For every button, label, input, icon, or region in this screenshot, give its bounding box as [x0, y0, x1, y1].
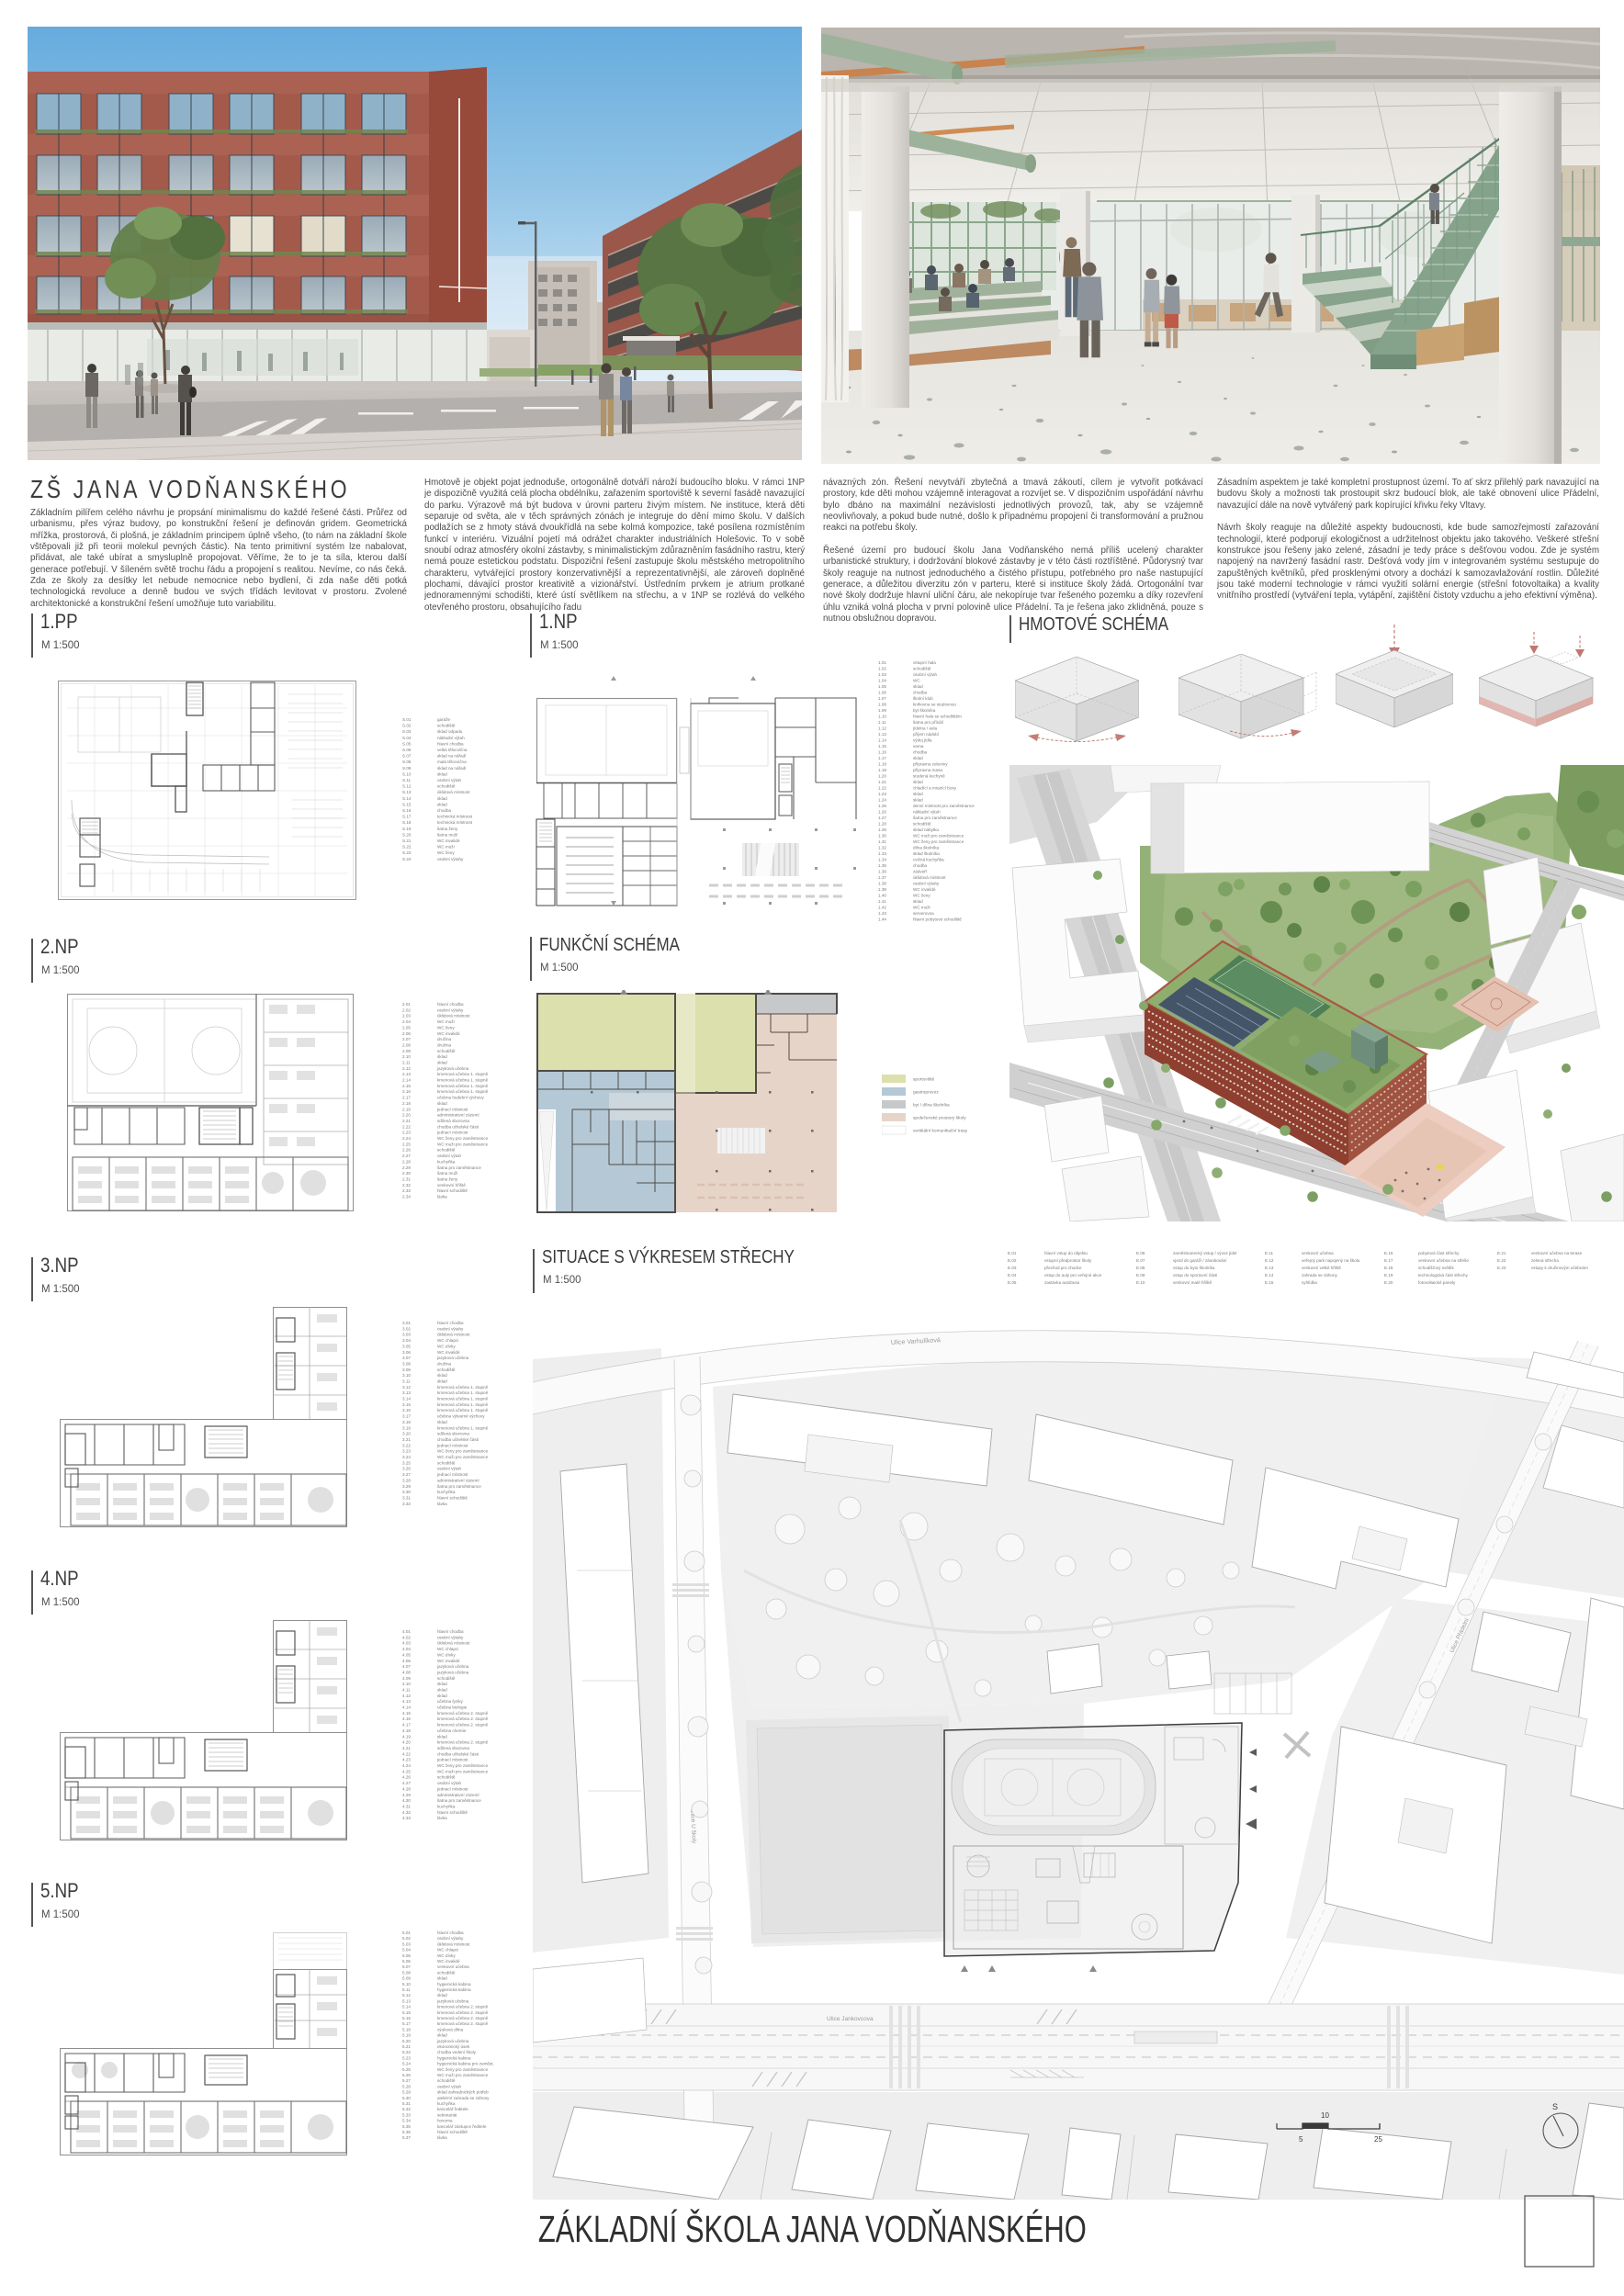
svg-text:10: 10 — [1321, 2111, 1329, 2120]
svg-text:sklad: sklad — [437, 1101, 447, 1106]
svg-text:5.13: 5.13 — [402, 1998, 411, 2003]
svg-text:5.14: 5.14 — [402, 2005, 411, 2009]
svg-text:osobní výtah: osobní výtah — [437, 1781, 461, 1785]
svg-text:denní místnost pro zaměstnance: denní místnost pro zaměstnance — [913, 804, 975, 808]
svg-text:hlavní hala se schodištěm: hlavní hala se schodištěm — [913, 715, 962, 719]
svg-text:jednací místnost: jednací místnost — [436, 1472, 468, 1477]
svg-text:kuchyňka: kuchyňka — [437, 1490, 456, 1494]
svg-text:garáže: garáže — [437, 717, 450, 722]
svg-text:jazyková učebna: jazyková učebna — [436, 1998, 469, 2003]
svg-text:venkovní velké hřiště: venkovní velké hřiště — [1302, 1266, 1341, 1270]
svg-text:kmenová učebna 1. stupně: kmenová učebna 1. stupně — [437, 1385, 489, 1390]
svg-text:WC invalidé: WC invalidé — [437, 838, 460, 843]
svg-text:kmenová učebna 2. stupně: kmenová učebna 2. stupně — [437, 1711, 489, 1716]
svg-text:hovorna: hovorna — [437, 2119, 453, 2123]
svg-text:4.11: 4.11 — [402, 1688, 411, 1693]
svg-text:4.06: 4.06 — [402, 1659, 411, 1663]
svg-text:WC ženy pro zaměstnance: WC ženy pro zaměstnance — [437, 1763, 489, 1768]
svg-text:S.14: S.14 — [402, 796, 412, 801]
svg-text:úklidová místnost: úklidová místnost — [437, 790, 470, 794]
svg-text:E.18: E.18 — [1384, 1266, 1393, 1270]
svg-text:5.22: 5.22 — [402, 2050, 411, 2054]
svg-text:3.24: 3.24 — [402, 1455, 411, 1459]
svg-text:vstupy k družinovým učebnám: vstupy k družinovým učebnám — [1531, 1266, 1588, 1270]
svg-text:5.10: 5.10 — [402, 1982, 411, 1986]
svg-text:S.01: S.01 — [402, 717, 412, 722]
svg-text:3.10: 3.10 — [402, 1373, 411, 1378]
svg-text:5.37: 5.37 — [402, 2135, 411, 2140]
svg-text:příjem nádobí: příjem nádobí — [913, 732, 940, 737]
svg-text:E.20: E.20 — [1384, 1280, 1393, 1285]
svg-text:sklad odpadu: sklad odpadu — [437, 729, 463, 734]
svg-text:5.24: 5.24 — [402, 2062, 411, 2066]
svg-text:WC ženy: WC ženy — [913, 894, 930, 898]
svg-text:5.26: 5.26 — [402, 2073, 411, 2077]
svg-text:5.07: 5.07 — [402, 1964, 411, 1969]
svg-text:schodiště: schodiště — [913, 822, 931, 827]
svg-text:sklad: sklad — [437, 1373, 447, 1378]
svg-text:1.34: 1.34 — [878, 858, 886, 862]
svg-text:sklad: sklad — [913, 756, 923, 760]
svg-text:4.16: 4.16 — [402, 1716, 411, 1721]
svg-text:chodba vedení školy: chodba vedení školy — [437, 2050, 477, 2054]
svg-text:hlavní chodba: hlavní chodba — [437, 741, 464, 746]
svg-text:chodba: chodba — [913, 863, 928, 868]
svg-text:lávka: lávka — [437, 1195, 447, 1199]
svg-text:1.25: 1.25 — [878, 804, 886, 808]
svg-text:E.02: E.02 — [1008, 1258, 1017, 1263]
svg-text:5.33: 5.33 — [402, 2112, 411, 2117]
svg-text:E.21: E.21 — [1497, 1251, 1506, 1255]
svg-text:1.31: 1.31 — [878, 839, 886, 844]
svg-text:2.34: 2.34 — [402, 1195, 411, 1199]
svg-text:WC ženy: WC ženy — [437, 850, 455, 855]
svg-text:schodišťový světlík: schodišťový světlík — [1418, 1266, 1454, 1270]
svg-text:chodba: chodba — [913, 750, 928, 755]
svg-text:sklad: sklad — [437, 1379, 447, 1384]
svg-text:E.17: E.17 — [1384, 1258, 1393, 1263]
svg-text:1.04: 1.04 — [878, 679, 886, 683]
svg-text:S.05: S.05 — [402, 741, 412, 746]
svg-text:4.29: 4.29 — [402, 1793, 411, 1797]
svg-text:4.20: 4.20 — [402, 1740, 411, 1745]
svg-text:osobní výtahy: osobní výtahy — [437, 1326, 464, 1331]
svg-text:3.25: 3.25 — [402, 1460, 411, 1465]
svg-text:4.13: 4.13 — [402, 1699, 411, 1704]
svg-text:jídelna / aula: jídelna / aula — [912, 726, 937, 731]
svg-text:5.03: 5.03 — [402, 1941, 411, 1946]
svg-text:4.31: 4.31 — [402, 1805, 411, 1809]
svg-text:5.18: 5.18 — [402, 2027, 411, 2032]
svg-text:hlavní vstup do objektu: hlavní vstup do objektu — [1044, 1251, 1088, 1255]
svg-text:3.28: 3.28 — [402, 1478, 411, 1482]
svg-text:kmenová učebna 2. stupně: kmenová učebna 2. stupně — [437, 2010, 489, 2015]
svg-text:osobní výtahy: osobní výtahy — [437, 1936, 464, 1941]
svg-text:5.02: 5.02 — [402, 1936, 411, 1941]
svg-text:2.25: 2.25 — [402, 1142, 411, 1146]
svg-text:1.13: 1.13 — [878, 732, 886, 737]
svg-text:vyhlídka: vyhlídka — [1302, 1280, 1317, 1285]
svg-text:kuchyňka: kuchyňka — [437, 1805, 456, 1809]
svg-text:S.04: S.04 — [402, 736, 412, 740]
svg-text:družina: družina — [437, 1043, 452, 1048]
svg-text:S.07: S.07 — [402, 754, 412, 759]
svg-text:hygienická kabina: hygienická kabina — [437, 2055, 471, 2060]
svg-text:fotovoltaické panely: fotovoltaické panely — [1418, 1280, 1456, 1285]
svg-text:sdílená sborovna: sdílená sborovna — [437, 1432, 469, 1436]
svg-text:4.12: 4.12 — [402, 1694, 411, 1698]
svg-text:šatna pro zaměstnance: šatna pro zaměstnance — [437, 1484, 481, 1489]
svg-text:1.05: 1.05 — [878, 684, 886, 689]
svg-text:venkovní učebna na terase: venkovní učebna na terase — [1531, 1251, 1583, 1255]
svg-text:S.16: S.16 — [402, 808, 412, 813]
svg-text:hlavní chodba: hlavní chodba — [437, 1321, 464, 1325]
svg-text:schodiště: schodiště — [437, 784, 456, 789]
svg-text:5: 5 — [1299, 2135, 1303, 2144]
svg-text:3.05: 3.05 — [402, 1344, 411, 1348]
svg-text:E.06: E.06 — [1136, 1251, 1145, 1255]
svg-text:2.21: 2.21 — [402, 1119, 411, 1123]
svg-text:sklad: sklad — [437, 1054, 447, 1059]
svg-text:5.21: 5.21 — [402, 2044, 411, 2049]
svg-text:vertikální komunikační trasy: vertikální komunikační trasy — [913, 1129, 968, 1134]
svg-text:schodiště: schodiště — [437, 1049, 456, 1053]
svg-text:1.17: 1.17 — [878, 756, 886, 760]
svg-text:výuková dílna: výuková dílna — [437, 2027, 464, 2032]
svg-text:technologická část střechy: technologická část střechy — [1418, 1273, 1469, 1277]
svg-text:kmenová učebna 1. stupně: kmenová učebna 1. stupně — [437, 1089, 489, 1094]
svg-text:kmenová učebna 1. stupně: kmenová učebna 1. stupně — [437, 1397, 489, 1401]
svg-text:4.04: 4.04 — [402, 1647, 411, 1651]
svg-text:4.27: 4.27 — [402, 1781, 411, 1785]
svg-text:venkovní malé hřiště: venkovní malé hřiště — [1173, 1280, 1212, 1285]
svg-text:WC dívky: WC dívky — [437, 1652, 456, 1657]
svg-text:kmenová učebna 2. stupně: kmenová učebna 2. stupně — [437, 2021, 489, 2026]
svg-text:WC muži pro zaměstnance: WC muži pro zaměstnance — [437, 2073, 489, 2077]
svg-text:4.09: 4.09 — [402, 1676, 411, 1681]
svg-text:pobytová část střechy: pobytová část střechy — [1418, 1251, 1460, 1255]
svg-text:sklad: sklad — [437, 771, 447, 776]
svg-text:šatna ženy: šatna ženy — [437, 1177, 458, 1182]
svg-text:kancelář zástupce ředitele: kancelář zástupce ředitele — [437, 2124, 487, 2129]
svg-text:3.17: 3.17 — [402, 1414, 411, 1419]
svg-text:1.22: 1.22 — [878, 786, 886, 791]
svg-text:chodba učitelské části: chodba učitelské části — [437, 1437, 479, 1442]
svg-text:technická místnost: technická místnost — [437, 815, 473, 819]
svg-text:S.22: S.22 — [402, 845, 412, 850]
svg-text:kmenová učebna 1. stupně: kmenová učebna 1. stupně — [437, 1078, 489, 1083]
svg-text:3.07: 3.07 — [402, 1356, 411, 1360]
svg-text:sklad: sklad — [913, 798, 923, 803]
svg-text:šatna pro zaměstnance: šatna pro zaměstnance — [437, 1165, 481, 1170]
svg-text:3.26: 3.26 — [402, 1467, 411, 1471]
svg-text:přechod pro chodce: přechod pro chodce — [1044, 1266, 1082, 1270]
svg-text:osobní výtahy: osobní výtahy — [437, 1635, 464, 1639]
svg-text:WC ženy pro zaměstnance: WC ženy pro zaměstnance — [437, 2067, 489, 2072]
svg-text:3.20: 3.20 — [402, 1432, 411, 1436]
svg-text:2.29: 2.29 — [402, 1165, 411, 1170]
svg-text:vstupní předprostor školy: vstupní předprostor školy — [1044, 1258, 1092, 1263]
svg-text:učebna výtvarné výchovy: učebna výtvarné výchovy — [437, 1414, 485, 1419]
svg-text:schodiště: schodiště — [437, 1367, 456, 1372]
svg-text:venkovní hřiště: venkovní hřiště — [437, 1183, 466, 1187]
svg-text:1.12: 1.12 — [878, 726, 886, 731]
svg-text:ateliérní zahrada se záhony: ateliérní zahrada se záhony — [437, 2096, 490, 2100]
svg-text:hygienická kabina: hygienická kabina — [437, 1987, 471, 1992]
svg-text:3.02: 3.02 — [402, 1326, 411, 1331]
svg-text:S.10: S.10 — [402, 771, 412, 776]
svg-text:kmenová učebna 1. stupně: kmenová učebna 1. stupně — [437, 1425, 489, 1430]
svg-text:4.18: 4.18 — [402, 1728, 411, 1733]
svg-text:úklidová místnost: úklidová místnost — [437, 1333, 470, 1337]
svg-text:2.27: 2.27 — [402, 1154, 411, 1158]
svg-text:výdej jídla: výdej jídla — [913, 738, 932, 743]
svg-text:1.39: 1.39 — [878, 887, 886, 892]
svg-text:1.37: 1.37 — [878, 875, 886, 880]
svg-text:WC invalidé: WC invalidé — [437, 1350, 460, 1355]
svg-text:malá tělocvična: malá tělocvična — [437, 760, 467, 764]
svg-text:5.31: 5.31 — [402, 2101, 411, 2106]
svg-text:hlavní schodiště: hlavní schodiště — [437, 1188, 468, 1193]
svg-text:4.22: 4.22 — [402, 1751, 411, 1756]
svg-text:1.01: 1.01 — [878, 660, 886, 665]
svg-text:šatna pro zaměstnance: šatna pro zaměstnance — [437, 1798, 481, 1803]
svg-text:vstup do auly pro veřejné akce: vstup do auly pro veřejné akce — [1044, 1273, 1102, 1277]
svg-text:5.16: 5.16 — [402, 2016, 411, 2020]
svg-text:WC invalidé: WC invalidé — [913, 887, 936, 892]
svg-text:WC muži pro zaměstnance: WC muži pro zaměstnance — [437, 1142, 489, 1146]
svg-text:1.07: 1.07 — [878, 696, 886, 701]
svg-text:2.15: 2.15 — [402, 1084, 411, 1088]
svg-text:nákladní výtah: nákladní výtah — [913, 810, 941, 815]
svg-text:sklad: sklad — [437, 1688, 447, 1693]
svg-text:4.17: 4.17 — [402, 1723, 411, 1728]
svg-text:3.12: 3.12 — [402, 1385, 411, 1390]
svg-text:sklad školníka: sklad školníka — [913, 851, 940, 856]
svg-text:osobní výtahy: osobní výtahy — [437, 1007, 464, 1012]
svg-text:WC muži: WC muži — [913, 906, 930, 910]
svg-text:1.33: 1.33 — [878, 851, 886, 856]
svg-text:WC invalidé: WC invalidé — [437, 1959, 460, 1964]
svg-text:vstupní hala: vstupní hala — [913, 660, 936, 665]
svg-text:1.36: 1.36 — [878, 870, 886, 874]
svg-text:1.19: 1.19 — [878, 768, 886, 772]
svg-text:zádveří: zádveří — [913, 870, 928, 874]
svg-text:E.08: E.08 — [1136, 1266, 1145, 1270]
svg-text:1.09: 1.09 — [878, 708, 886, 713]
svg-text:učebna chemie: učebna chemie — [437, 1728, 467, 1733]
svg-text:sklad: sklad — [437, 1976, 447, 1981]
svg-text:3.06: 3.06 — [402, 1350, 411, 1355]
svg-text:S.17: S.17 — [402, 815, 412, 819]
svg-text:S.09: S.09 — [402, 766, 412, 771]
svg-text:5.09: 5.09 — [402, 1976, 411, 1981]
svg-text:vjezd do garáží / zásobování: vjezd do garáží / zásobování — [1173, 1258, 1227, 1263]
svg-text:WC invalidé: WC invalidé — [437, 1659, 460, 1663]
svg-text:venkovní učebna: venkovní učebna — [437, 1964, 469, 1969]
svg-text:4.01: 4.01 — [402, 1629, 411, 1634]
svg-text:E.15: E.15 — [1265, 1280, 1274, 1285]
svg-text:jazyková učebna: jazyková učebna — [436, 2039, 469, 2043]
svg-text:5.28: 5.28 — [402, 2084, 411, 2088]
svg-text:4.08: 4.08 — [402, 1671, 411, 1675]
svg-text:WC ženy pro zaměstnance: WC ženy pro zaměstnance — [437, 1449, 489, 1454]
svg-text:osobní výtah: osobní výtah — [437, 778, 461, 782]
svg-text:4.24: 4.24 — [402, 1763, 411, 1768]
svg-text:2.02: 2.02 — [402, 1007, 411, 1012]
svg-text:2.33: 2.33 — [402, 1188, 411, 1193]
svg-text:WC: WC — [913, 679, 920, 683]
svg-text:družina: družina — [437, 1037, 452, 1041]
svg-text:sklad: sklad — [437, 1420, 447, 1424]
svg-text:2.11: 2.11 — [402, 1061, 411, 1065]
svg-text:2.06: 2.06 — [402, 1031, 411, 1036]
svg-text:1.43: 1.43 — [878, 911, 886, 916]
svg-text:1.18: 1.18 — [878, 762, 886, 767]
svg-text:5.30: 5.30 — [402, 2096, 411, 2100]
svg-text:kmenová učebna 1. stupně: kmenová učebna 1. stupně — [437, 1084, 489, 1088]
svg-text:2.13: 2.13 — [402, 1072, 411, 1076]
svg-text:jednací místnost: jednací místnost — [436, 1443, 468, 1447]
svg-text:vstup do sportovní části: vstup do sportovní části — [1173, 1273, 1217, 1277]
svg-text:sklad: sklad — [437, 1694, 447, 1698]
svg-text:1.42: 1.42 — [878, 906, 886, 910]
svg-text:zelená střecha: zelená střecha — [1531, 1258, 1559, 1263]
svg-text:jazyková učebna: jazyková učebna — [436, 1356, 469, 1360]
svg-text:sklad: sklad — [437, 1682, 447, 1686]
svg-text:družina: družina — [437, 1362, 452, 1367]
svg-text:1.26: 1.26 — [878, 810, 886, 815]
svg-text:2.26: 2.26 — [402, 1148, 411, 1153]
svg-text:1.32: 1.32 — [878, 846, 886, 850]
svg-text:WC muži pro zaměstnance: WC muži pro zaměstnance — [437, 1455, 489, 1459]
svg-text:2.19: 2.19 — [402, 1107, 411, 1111]
svg-text:1.10: 1.10 — [878, 715, 886, 719]
svg-text:E.09: E.09 — [1136, 1273, 1145, 1277]
svg-text:chladící a mrazící boxy: chladící a mrazící boxy — [913, 786, 957, 791]
svg-text:4.10: 4.10 — [402, 1682, 411, 1686]
svg-text:5.19: 5.19 — [402, 2033, 411, 2038]
svg-text:4.23: 4.23 — [402, 1758, 411, 1762]
svg-text:osobní výtah: osobní výtah — [437, 1154, 461, 1158]
svg-text:5.29: 5.29 — [402, 2090, 411, 2095]
svg-text:3.11: 3.11 — [402, 1379, 411, 1384]
svg-text:3.09: 3.09 — [402, 1367, 411, 1372]
svg-text:3.01: 3.01 — [402, 1321, 411, 1325]
svg-text:učebna fyziky: učebna fyziky — [437, 1699, 464, 1704]
svg-text:osobní výtahy: osobní výtahy — [437, 857, 464, 861]
svg-text:lávka: lávka — [437, 1816, 447, 1820]
svg-text:3.15: 3.15 — [402, 1402, 411, 1407]
svg-text:sklad: sklad — [437, 802, 447, 806]
svg-text:1.16: 1.16 — [878, 750, 886, 755]
svg-text:1.29: 1.29 — [878, 827, 886, 832]
svg-text:zastávka autobusu: zastávka autobusu — [1044, 1280, 1080, 1285]
svg-text:sklad: sklad — [913, 899, 923, 904]
svg-text:sklad: sklad — [437, 796, 447, 801]
svg-text:4.05: 4.05 — [402, 1652, 411, 1657]
svg-text:kmenová učebna 2. stupně: kmenová učebna 2. stupně — [437, 2016, 489, 2020]
svg-text:schodiště: schodiště — [437, 1970, 456, 1975]
svg-text:kmenová učebna 2. stupně: kmenová učebna 2. stupně — [437, 2005, 489, 2009]
svg-text:WC muži pro zaměstnance: WC muži pro zaměstnance — [913, 834, 964, 838]
svg-text:sklad: sklad — [913, 780, 923, 784]
svg-text:šatna pro zaměstnance: šatna pro zaměstnance — [913, 816, 957, 820]
svg-text:serverovna: serverovna — [913, 911, 934, 916]
svg-text:sklad: sklad — [913, 684, 923, 689]
svg-text:hlavní schodiště: hlavní schodiště — [437, 1496, 468, 1501]
svg-text:1.38: 1.38 — [878, 882, 886, 886]
svg-text:knihovna se studovnou: knihovna se studovnou — [913, 703, 956, 707]
svg-text:E.03: E.03 — [1008, 1266, 1017, 1270]
svg-text:kmenová učebna 2. stupně: kmenová učebna 2. stupně — [437, 1740, 489, 1745]
svg-text:osobní výtah: osobní výtah — [913, 672, 937, 677]
svg-text:přípravna zeleniny: přípravna zeleniny — [913, 762, 948, 767]
svg-text:3.27: 3.27 — [402, 1472, 411, 1477]
svg-text:S.20: S.20 — [402, 832, 412, 837]
svg-text:nákladní výtah: nákladní výtah — [437, 736, 465, 740]
svg-text:chodba učitelské části: chodba učitelské části — [437, 1751, 479, 1756]
svg-text:kuchyňka: kuchyňka — [437, 2101, 456, 2106]
svg-text:3.14: 3.14 — [402, 1397, 411, 1401]
svg-text:lávka: lávka — [437, 1502, 447, 1506]
svg-text:4.19: 4.19 — [402, 1734, 411, 1739]
svg-text:1.11: 1.11 — [878, 720, 886, 725]
svg-text:E.07: E.07 — [1136, 1258, 1145, 1263]
svg-text:šatna muži: šatna muži — [437, 832, 457, 837]
svg-text:S.19: S.19 — [402, 827, 412, 831]
svg-text:sportoviště: sportoviště — [913, 1077, 935, 1083]
svg-text:4.14: 4.14 — [402, 1705, 411, 1710]
svg-text:WC ženy: WC ženy — [437, 1025, 455, 1030]
svg-text:jednací místnost: jednací místnost — [436, 1786, 468, 1791]
svg-text:5.34: 5.34 — [402, 2119, 411, 2123]
svg-text:2.03: 2.03 — [402, 1014, 411, 1019]
svg-text:vstup do bytu školníka: vstup do bytu školníka — [1173, 1266, 1215, 1270]
svg-text:chodba: chodba — [913, 691, 928, 695]
svg-text:veřejný park napojený na školu: veřejný park napojený na školu — [1302, 1258, 1360, 1263]
svg-text:přípravna masa: přípravna masa — [913, 768, 942, 772]
svg-text:4.03: 4.03 — [402, 1641, 411, 1646]
svg-text:5.05: 5.05 — [402, 1953, 411, 1958]
svg-text:jednací místnost: jednací místnost — [436, 1131, 468, 1135]
svg-text:osobní výtah: osobní výtah — [437, 1467, 461, 1471]
svg-text:hlavní chodba: hlavní chodba — [437, 1930, 464, 1935]
svg-text:S.13: S.13 — [402, 790, 412, 794]
svg-text:sklad: sklad — [437, 1993, 447, 1998]
svg-text:WC ženy pro zaměstnance: WC ženy pro zaměstnance — [437, 1136, 489, 1141]
svg-text:2.18: 2.18 — [402, 1101, 411, 1106]
svg-text:3.16: 3.16 — [402, 1408, 411, 1412]
svg-text:2.08: 2.08 — [402, 1043, 411, 1048]
svg-text:3.18: 3.18 — [402, 1420, 411, 1424]
svg-text:E.05: E.05 — [1008, 1280, 1017, 1285]
svg-text:E.23: E.23 — [1497, 1266, 1506, 1270]
svg-text:1.21: 1.21 — [878, 780, 886, 784]
svg-text:S.24: S.24 — [402, 857, 412, 861]
svg-text:E.11: E.11 — [1265, 1251, 1274, 1255]
svg-text:2.23: 2.23 — [402, 1131, 411, 1135]
svg-text:1.15: 1.15 — [878, 744, 886, 748]
svg-text:5.27: 5.27 — [402, 2078, 411, 2083]
svg-text:4.21: 4.21 — [402, 1746, 411, 1750]
svg-text:2.09: 2.09 — [402, 1049, 411, 1053]
svg-text:sklad zahradnických potřeb: sklad zahradnických potřeb — [437, 2090, 489, 2095]
svg-text:2.04: 2.04 — [402, 1019, 411, 1024]
svg-text:administrativní zázemí: administrativní zázemí — [437, 1478, 479, 1482]
svg-text:5.35: 5.35 — [402, 2124, 411, 2129]
svg-text:S.06: S.06 — [402, 748, 412, 752]
